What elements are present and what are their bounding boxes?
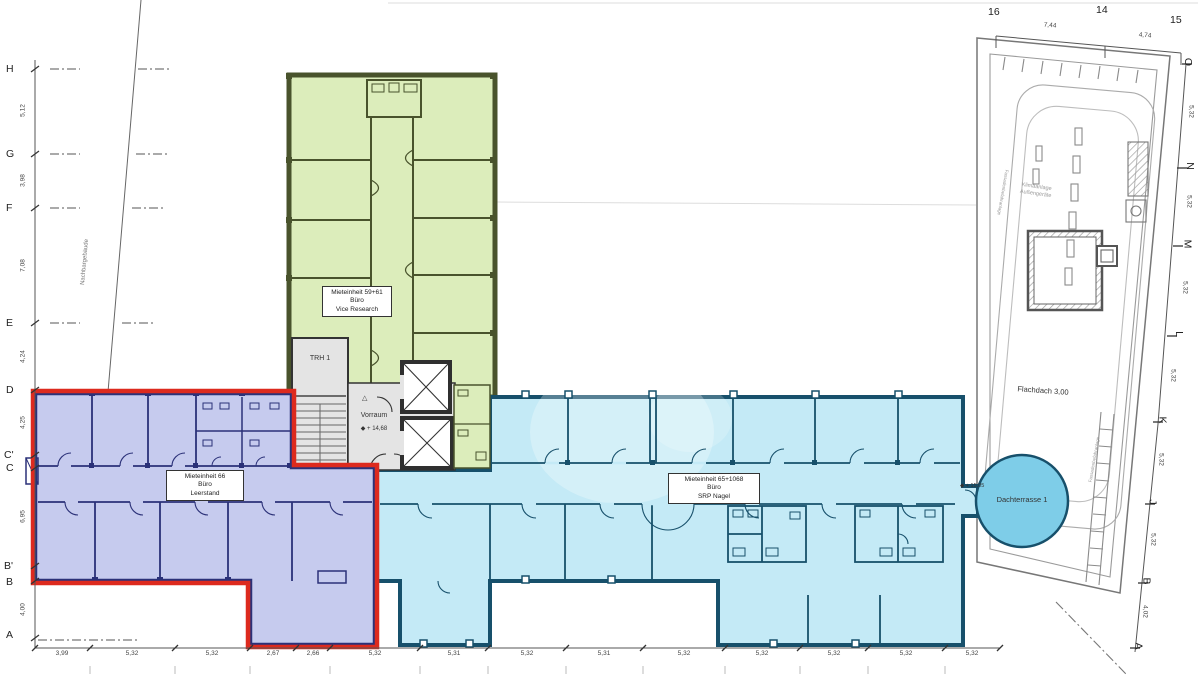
- unit-label-blue: Mieteinheit 66 Büro Leerstand: [166, 470, 244, 501]
- dim-right-1: 5,32: [1188, 99, 1195, 125]
- dim-bottom-10: 5,32: [669, 650, 699, 657]
- unit-label-green: Mieteinheit 59+61 Büro Vice Research: [322, 286, 392, 317]
- grid-row-f: F: [6, 202, 12, 214]
- dim-bottom-13: 5,32: [891, 650, 921, 657]
- unit-green-number: Mieteinheit 59+61: [324, 289, 390, 297]
- grid-row-c: C: [6, 462, 14, 474]
- dim-bottom-5: 2,66: [298, 650, 328, 657]
- grid-col-15: 15: [1170, 14, 1182, 26]
- dim-left-3: 7,08: [20, 251, 27, 281]
- dim-right-3: 5,32: [1182, 275, 1189, 301]
- dim-left-6: 6,95: [20, 502, 27, 532]
- dim-bottom-12: 5,32: [819, 650, 849, 657]
- grid-row-h: H: [6, 63, 14, 75]
- stairwell-label: TRH 1: [296, 355, 344, 362]
- grid-row-b: B: [6, 576, 13, 588]
- grid-row-g: G: [6, 148, 14, 160]
- floor-plan-sheet: H G F E D C' C B' B A 5,12 3,98 7,08 4,2…: [0, 0, 1200, 675]
- elevation-diamond-icon: ◆: [361, 426, 366, 432]
- dim-bottom-9: 5,31: [589, 650, 619, 657]
- dim-bottom-11: 5,32: [747, 650, 777, 657]
- terrace-level-value: + 15,05: [966, 483, 985, 489]
- dim-bottom-1: 3,99: [47, 650, 77, 657]
- floor-plan-drawing: [0, 0, 1200, 675]
- vorraum-label: Vorraum: [346, 412, 402, 419]
- grid-row-n: N: [1184, 162, 1196, 170]
- dim-bottom-14: 5,32: [957, 650, 987, 657]
- grid-row-k: K: [1157, 416, 1169, 423]
- unit-blue-number: Mieteinheit 66: [168, 473, 242, 481]
- dim-bottom-2: 5,32: [117, 650, 147, 657]
- unit-green-tenant: Vice Research: [324, 306, 390, 314]
- unit-blue-use: Büro: [168, 481, 242, 489]
- dim-left-1: 5,12: [20, 96, 27, 126]
- dim-bottom-4: 2,67: [258, 650, 288, 657]
- grid-row-l: L: [1173, 331, 1185, 337]
- unit-green-use: Büro: [324, 297, 390, 305]
- dim-left-7: 4,00: [20, 595, 27, 625]
- grid-row-o: O: [1182, 58, 1194, 66]
- grid-row-c1: C': [4, 449, 14, 461]
- grid-row-e: E: [6, 317, 13, 329]
- vorraum-level: ◆ + 14,68: [344, 425, 404, 432]
- unit-label-cyan: Mieteinheit 65+1068 Büro SRP Nagel: [668, 473, 760, 504]
- grid-row-a: A: [6, 629, 13, 641]
- grid-row-m: M: [1181, 240, 1193, 249]
- dim-left-5: 4,25: [20, 408, 27, 438]
- dim-bottom-8: 5,32: [512, 650, 542, 657]
- grid-col-16: 16: [988, 6, 1000, 18]
- dim-left-4: 4,24: [20, 342, 27, 372]
- unit-cyan-number: Mieteinheit 65+1068: [670, 476, 758, 484]
- elevation-diamond-icon-2: ◆: [960, 483, 964, 489]
- dim-right-2: 5,32: [1186, 189, 1193, 215]
- dim-right-5: 5,32: [1158, 447, 1165, 473]
- dim-bottom-6: 5,32: [360, 650, 390, 657]
- grid-row-d: D: [6, 384, 14, 396]
- grid-col-14: 14: [1096, 4, 1108, 16]
- dachterrasse-label: Dachterrasse 1: [984, 495, 1060, 504]
- dim-right-4: 5,32: [1170, 363, 1177, 389]
- unit-blue-tenant: Leerstand: [168, 490, 242, 498]
- unit-cyan-tenant: SRP Nagel: [670, 493, 758, 501]
- grid-row-b1: B': [4, 560, 13, 572]
- terrace-level: ◆ + 15,05: [960, 483, 984, 489]
- unit-cyan-use: Büro: [670, 484, 758, 492]
- dim-bottom-3: 5,32: [197, 650, 227, 657]
- vent-triangle-icon: △: [362, 394, 367, 402]
- dim-bottom-7: 5,31: [439, 650, 469, 657]
- dim-left-2: 3,98: [20, 166, 27, 196]
- grid-row-a2: A: [1133, 642, 1145, 649]
- grid-row-b2: B: [1141, 577, 1153, 584]
- grid-row-j: J: [1147, 499, 1159, 504]
- vorraum-level-value: + 14,68: [367, 426, 387, 432]
- dim-right-6: 5,32: [1150, 527, 1157, 553]
- dim-right-7: 4,02: [1142, 599, 1149, 625]
